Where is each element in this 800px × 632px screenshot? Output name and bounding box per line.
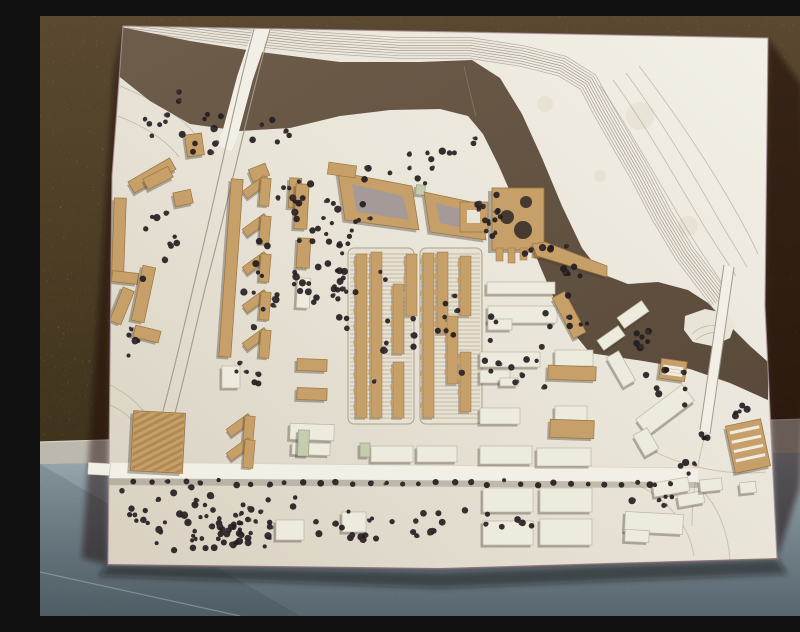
slab-balcony bbox=[435, 290, 438, 295]
tree bbox=[634, 330, 640, 336]
tree bbox=[568, 481, 574, 487]
building-body bbox=[480, 408, 520, 424]
slab-balcony bbox=[445, 338, 448, 343]
building-body bbox=[550, 419, 595, 439]
tree bbox=[694, 463, 697, 466]
tree bbox=[374, 537, 378, 541]
slab-balcony bbox=[354, 308, 357, 313]
tree bbox=[190, 149, 196, 155]
tree bbox=[193, 529, 196, 532]
tree bbox=[157, 122, 162, 127]
tree bbox=[337, 280, 342, 285]
tree bbox=[498, 214, 503, 219]
building-white bbox=[485, 282, 556, 297]
tree bbox=[155, 498, 159, 502]
building-white bbox=[340, 512, 367, 535]
tree bbox=[292, 209, 297, 214]
hall-roof-hatch bbox=[132, 412, 185, 473]
tree bbox=[484, 482, 490, 488]
tree bbox=[325, 260, 332, 267]
tree bbox=[143, 508, 148, 513]
tree bbox=[340, 251, 344, 255]
tree bbox=[522, 253, 526, 257]
tree bbox=[256, 270, 260, 274]
tree bbox=[462, 507, 466, 511]
tree bbox=[619, 482, 625, 488]
slab-balcony bbox=[354, 260, 357, 265]
tree bbox=[414, 519, 418, 523]
slab-balcony bbox=[369, 274, 372, 279]
tree bbox=[566, 244, 569, 247]
building-white bbox=[622, 529, 649, 545]
tree bbox=[384, 341, 389, 346]
tree bbox=[519, 372, 523, 376]
slab-balcony bbox=[369, 402, 372, 407]
building-slab bbox=[423, 253, 434, 418]
tree bbox=[126, 332, 131, 337]
tree bbox=[188, 485, 192, 489]
tree bbox=[217, 523, 222, 528]
tree bbox=[140, 276, 147, 283]
tree bbox=[128, 505, 134, 511]
tree bbox=[442, 315, 447, 320]
tree bbox=[300, 195, 306, 201]
tree bbox=[578, 273, 583, 278]
building-leg bbox=[496, 248, 503, 261]
tree bbox=[307, 180, 314, 187]
tree bbox=[300, 479, 306, 485]
slab-balcony bbox=[391, 400, 394, 405]
tree bbox=[255, 521, 258, 524]
building-body bbox=[625, 529, 650, 542]
tree bbox=[331, 286, 335, 290]
tree bbox=[535, 482, 541, 488]
slab-balcony bbox=[421, 259, 424, 264]
tree bbox=[477, 209, 480, 212]
tree bbox=[221, 539, 227, 545]
slab-balcony bbox=[404, 292, 407, 297]
slab-balcony bbox=[445, 370, 448, 375]
tree bbox=[265, 497, 270, 502]
tree bbox=[367, 518, 370, 521]
building-body bbox=[259, 178, 271, 207]
slab-balcony bbox=[369, 322, 372, 327]
tree bbox=[149, 479, 154, 484]
tree bbox=[205, 112, 210, 117]
building-white bbox=[369, 446, 414, 465]
tree bbox=[307, 289, 312, 294]
tree bbox=[482, 204, 486, 208]
tree bbox=[277, 197, 280, 200]
tree bbox=[241, 502, 246, 507]
tree bbox=[645, 330, 650, 335]
tree bbox=[147, 522, 150, 525]
tree bbox=[686, 471, 690, 475]
tree bbox=[198, 515, 202, 519]
tree bbox=[299, 279, 306, 286]
tree bbox=[488, 369, 493, 374]
tree bbox=[488, 339, 492, 343]
building-body bbox=[222, 366, 240, 388]
slab-balcony bbox=[421, 339, 424, 344]
tree bbox=[435, 510, 441, 516]
tree bbox=[172, 491, 177, 496]
slab-balcony bbox=[369, 258, 372, 263]
building-body bbox=[699, 478, 722, 492]
tree bbox=[485, 522, 488, 525]
tree bbox=[202, 117, 206, 121]
tree bbox=[410, 333, 415, 338]
tree bbox=[309, 238, 315, 244]
tree bbox=[540, 245, 545, 250]
tree bbox=[129, 327, 132, 330]
tree bbox=[657, 499, 660, 502]
tree bbox=[335, 269, 339, 273]
tree bbox=[309, 227, 315, 233]
tree bbox=[217, 531, 223, 537]
tree bbox=[153, 214, 160, 221]
tree bbox=[178, 98, 182, 102]
building-body bbox=[111, 271, 138, 285]
tree bbox=[275, 139, 280, 144]
building-body bbox=[480, 446, 532, 464]
tree bbox=[169, 243, 173, 247]
tree bbox=[414, 175, 420, 181]
architectural-model-scene bbox=[40, 16, 800, 616]
tree bbox=[336, 314, 343, 321]
tree bbox=[260, 274, 264, 278]
tree bbox=[282, 481, 285, 484]
tree bbox=[263, 544, 267, 548]
building-slab bbox=[460, 256, 471, 316]
building-slab bbox=[393, 284, 404, 354]
tree bbox=[450, 332, 456, 338]
tree bbox=[370, 481, 374, 485]
tree bbox=[234, 370, 238, 374]
building-slab bbox=[371, 252, 382, 418]
tree bbox=[643, 372, 649, 378]
tree bbox=[515, 379, 519, 383]
tree bbox=[260, 124, 263, 127]
slab-balcony bbox=[458, 358, 461, 363]
tree bbox=[488, 313, 495, 320]
tree bbox=[211, 127, 216, 132]
building-slab bbox=[393, 362, 404, 418]
tree bbox=[360, 538, 365, 543]
tree bbox=[566, 323, 573, 330]
slab-balcony bbox=[435, 258, 438, 263]
building-body bbox=[360, 443, 370, 457]
tree bbox=[374, 379, 377, 382]
tree bbox=[565, 292, 571, 298]
slab-balcony bbox=[404, 260, 407, 265]
building-tan bbox=[294, 387, 327, 403]
tree bbox=[452, 480, 456, 484]
slab-balcony bbox=[369, 306, 372, 311]
tree bbox=[485, 229, 488, 232]
tree bbox=[341, 276, 346, 281]
tree bbox=[256, 238, 263, 245]
tree bbox=[383, 348, 388, 353]
tree bbox=[704, 435, 710, 441]
tree bbox=[360, 201, 366, 207]
slab-balcony bbox=[435, 274, 438, 279]
tree bbox=[298, 181, 301, 184]
building-body bbox=[259, 330, 271, 359]
tree bbox=[249, 137, 256, 144]
tree bbox=[264, 243, 271, 250]
tree bbox=[585, 321, 589, 325]
tree bbox=[579, 322, 583, 326]
tree bbox=[215, 140, 219, 144]
tree bbox=[683, 387, 688, 392]
slab-balcony bbox=[421, 387, 424, 392]
stain bbox=[594, 170, 606, 182]
building-white bbox=[697, 478, 723, 495]
model-photograph bbox=[40, 16, 800, 616]
tree bbox=[323, 216, 326, 219]
tree bbox=[290, 503, 297, 510]
tree bbox=[209, 524, 213, 528]
tree bbox=[267, 484, 271, 488]
tree bbox=[132, 339, 137, 344]
tree bbox=[172, 235, 176, 239]
tree bbox=[471, 141, 475, 145]
tree bbox=[518, 481, 523, 486]
tree bbox=[485, 512, 490, 517]
tree bbox=[379, 270, 382, 273]
tree bbox=[298, 289, 302, 293]
tree bbox=[344, 316, 349, 321]
slab-balcony bbox=[354, 388, 357, 393]
building-body bbox=[243, 440, 255, 469]
tree bbox=[433, 479, 439, 485]
building-tan bbox=[547, 419, 594, 441]
building-body bbox=[297, 387, 327, 400]
tree bbox=[283, 130, 287, 134]
tree bbox=[130, 479, 136, 485]
building-tan bbox=[182, 133, 205, 160]
tree bbox=[439, 148, 446, 155]
tree bbox=[432, 166, 435, 169]
slab-balcony bbox=[421, 371, 424, 376]
tree bbox=[482, 358, 488, 364]
slab-balcony bbox=[404, 276, 407, 281]
tree bbox=[384, 482, 387, 485]
tree bbox=[678, 463, 684, 469]
tree bbox=[670, 495, 675, 500]
slab-balcony bbox=[369, 354, 372, 359]
tree bbox=[291, 195, 296, 200]
tree bbox=[655, 390, 662, 397]
slab-balcony bbox=[421, 307, 424, 312]
tree bbox=[184, 519, 191, 526]
tree bbox=[120, 488, 124, 492]
building-body bbox=[112, 198, 127, 274]
tree bbox=[273, 304, 276, 307]
tree bbox=[472, 137, 475, 140]
tree bbox=[269, 117, 275, 123]
building-body bbox=[548, 365, 596, 381]
building-tan bbox=[545, 365, 596, 383]
tree bbox=[459, 370, 463, 374]
slab-balcony bbox=[369, 386, 372, 391]
building-slab bbox=[356, 254, 367, 418]
tree bbox=[313, 520, 317, 524]
tree bbox=[350, 481, 356, 487]
slab-balcony bbox=[391, 338, 394, 343]
tree bbox=[370, 516, 374, 520]
building-body bbox=[483, 488, 533, 512]
tree bbox=[249, 531, 253, 535]
building-white bbox=[478, 446, 533, 467]
tree bbox=[281, 185, 286, 190]
tree bbox=[335, 206, 340, 211]
slab-balcony bbox=[458, 294, 461, 299]
building-body bbox=[488, 319, 512, 330]
tree bbox=[176, 89, 180, 93]
tree bbox=[247, 518, 251, 522]
tree bbox=[602, 482, 606, 486]
building-white bbox=[478, 408, 521, 427]
tree bbox=[510, 366, 514, 370]
tree bbox=[287, 186, 290, 189]
slab-balcony bbox=[369, 290, 372, 295]
slab-balcony bbox=[421, 355, 424, 360]
tree bbox=[567, 272, 571, 276]
building-body bbox=[371, 446, 413, 462]
tree bbox=[542, 310, 548, 316]
slab-balcony bbox=[458, 262, 461, 267]
tree bbox=[143, 226, 148, 231]
tree bbox=[211, 544, 218, 551]
tree bbox=[350, 228, 354, 232]
tree bbox=[498, 362, 502, 366]
tree bbox=[295, 275, 300, 280]
slab-balcony bbox=[391, 290, 394, 295]
model-board bbox=[90, 16, 777, 569]
slab-balcony bbox=[391, 384, 394, 389]
tree bbox=[165, 480, 168, 483]
slab-balcony bbox=[354, 324, 357, 329]
tree bbox=[449, 152, 453, 156]
tree bbox=[252, 260, 259, 267]
tree bbox=[216, 478, 220, 482]
tree bbox=[266, 532, 271, 537]
slab-balcony bbox=[391, 322, 394, 327]
slab-balcony bbox=[354, 372, 357, 377]
tree bbox=[744, 407, 749, 412]
tree bbox=[134, 513, 137, 516]
tree bbox=[292, 282, 295, 285]
slab-balcony bbox=[369, 370, 372, 375]
tree bbox=[233, 482, 240, 489]
tree bbox=[639, 334, 644, 339]
building-white bbox=[274, 520, 305, 543]
hall-group bbox=[127, 411, 185, 477]
tree bbox=[410, 344, 416, 350]
building-body bbox=[342, 512, 366, 532]
tree bbox=[635, 480, 640, 485]
tree bbox=[470, 479, 474, 483]
tree bbox=[339, 525, 345, 531]
tree bbox=[334, 481, 338, 485]
tree bbox=[338, 245, 341, 248]
tree bbox=[261, 307, 266, 312]
tree bbox=[151, 135, 154, 138]
building-body bbox=[555, 406, 587, 421]
road-overhang bbox=[88, 462, 111, 475]
tree bbox=[416, 534, 420, 538]
tree bbox=[477, 201, 482, 206]
tree bbox=[269, 525, 273, 529]
tree bbox=[443, 328, 448, 333]
tree bbox=[333, 293, 336, 296]
tree bbox=[645, 339, 650, 344]
tree bbox=[668, 481, 671, 484]
tree bbox=[653, 483, 658, 488]
tree bbox=[428, 156, 434, 162]
building-tan bbox=[291, 184, 309, 232]
tree bbox=[248, 482, 253, 487]
tree bbox=[216, 536, 221, 541]
tree bbox=[331, 221, 334, 224]
tree bbox=[454, 309, 458, 313]
tree bbox=[326, 238, 332, 244]
tree bbox=[665, 368, 669, 372]
building-body bbox=[540, 488, 592, 512]
tree bbox=[293, 495, 297, 499]
tree bbox=[486, 218, 489, 221]
building-white bbox=[481, 488, 534, 515]
tree bbox=[205, 514, 208, 517]
tree bbox=[293, 216, 300, 223]
building-white bbox=[415, 446, 458, 465]
tree bbox=[734, 414, 739, 419]
slab-balcony bbox=[391, 368, 394, 373]
tree bbox=[202, 545, 208, 551]
tree bbox=[492, 217, 497, 222]
tree bbox=[267, 520, 272, 525]
tree bbox=[344, 289, 347, 292]
tree bbox=[184, 480, 188, 484]
slab-balcony bbox=[354, 356, 357, 361]
tree bbox=[737, 410, 740, 413]
tree bbox=[401, 482, 405, 486]
tree bbox=[439, 519, 446, 526]
tree bbox=[548, 245, 554, 251]
tree bbox=[239, 534, 242, 537]
tree bbox=[239, 361, 242, 364]
slab-balcony bbox=[391, 306, 394, 311]
stain bbox=[537, 96, 553, 112]
tree bbox=[367, 217, 370, 220]
tree bbox=[385, 318, 390, 323]
tree bbox=[164, 113, 168, 117]
tree bbox=[421, 510, 426, 515]
tree bbox=[164, 120, 167, 123]
tree bbox=[238, 527, 242, 531]
tree bbox=[389, 171, 392, 174]
slab-balcony bbox=[458, 278, 461, 283]
building-white bbox=[737, 481, 757, 496]
tree bbox=[357, 220, 360, 223]
slab-balcony bbox=[435, 306, 438, 311]
tree bbox=[162, 256, 166, 260]
tree bbox=[534, 359, 538, 363]
tree bbox=[494, 320, 499, 325]
building-body bbox=[483, 521, 533, 545]
